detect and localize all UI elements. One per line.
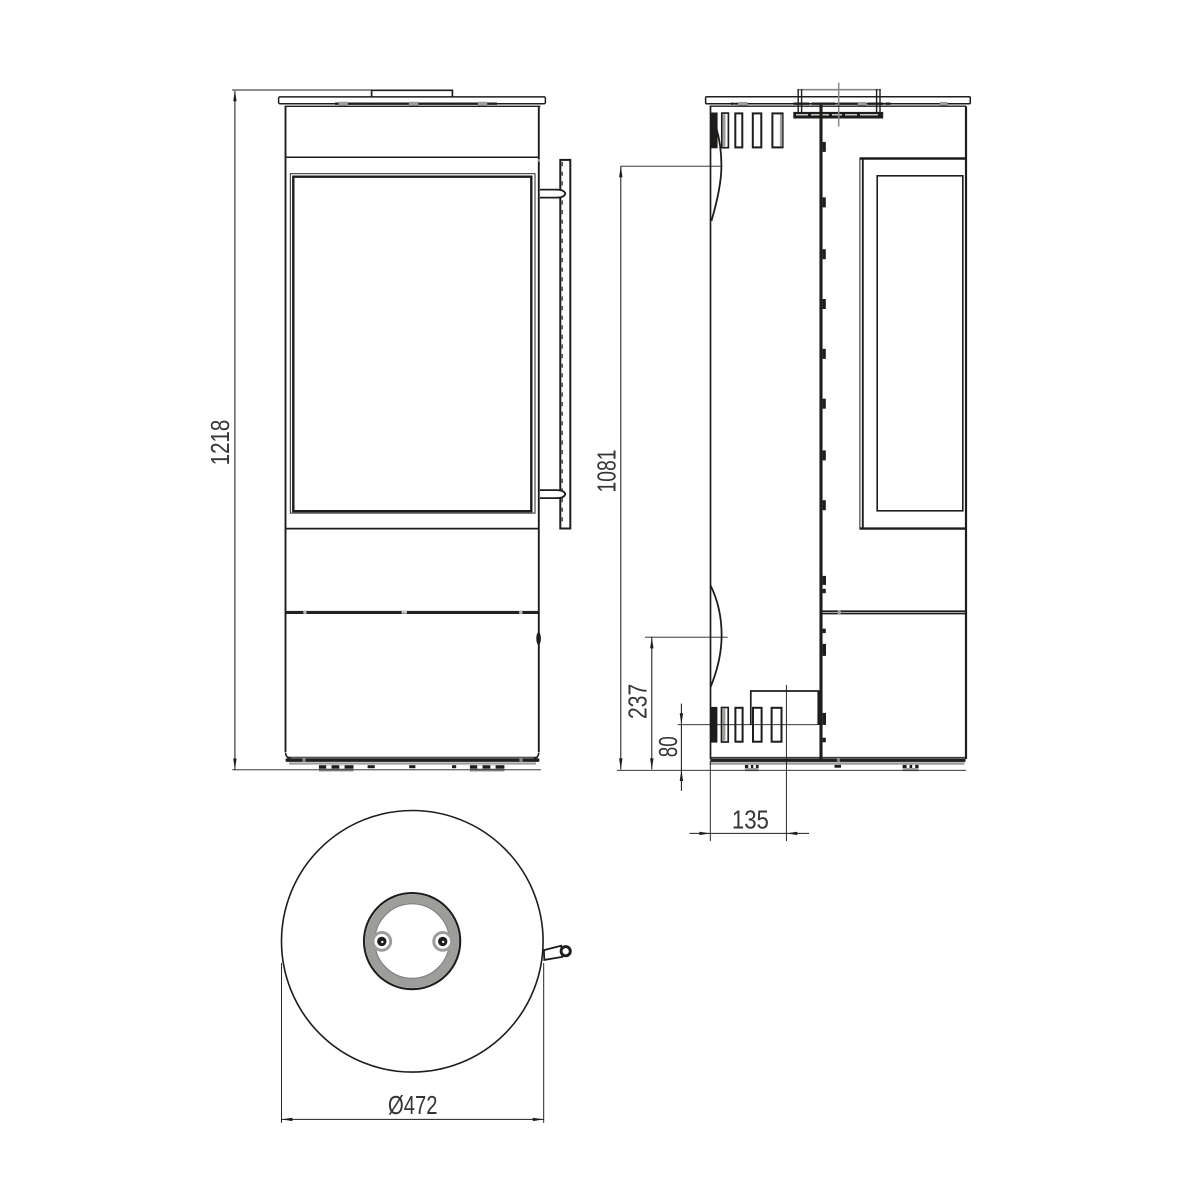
- svg-text:Ø472: Ø472: [388, 1090, 438, 1120]
- svg-text:80: 80: [655, 736, 683, 757]
- svg-text:237: 237: [624, 684, 652, 719]
- svg-text:1081: 1081: [594, 450, 622, 493]
- svg-text:135: 135: [732, 806, 769, 834]
- svg-text:1218: 1218: [207, 420, 235, 466]
